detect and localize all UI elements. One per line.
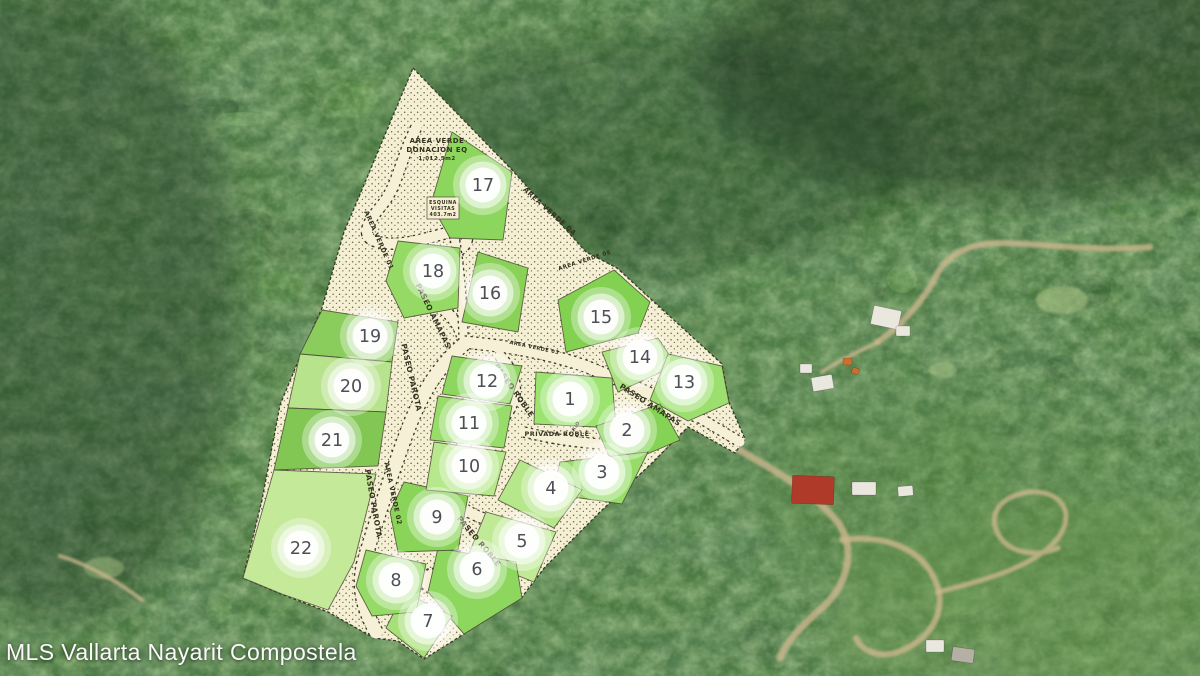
lot-marker: 21 bbox=[302, 410, 362, 470]
lot-number: 6 bbox=[471, 560, 482, 580]
lot-number: 10 bbox=[458, 457, 480, 477]
lot-number: 16 bbox=[479, 284, 501, 304]
lot-marker: 17 bbox=[453, 155, 513, 215]
lot-number: 13 bbox=[673, 373, 695, 393]
lot-number: 2 bbox=[621, 421, 632, 441]
lot-number: 8 bbox=[390, 571, 401, 591]
lot-number: 22 bbox=[290, 539, 312, 559]
lot-marker: 9 bbox=[407, 487, 467, 547]
lot-marker: 20 bbox=[321, 356, 381, 416]
white-roof bbox=[898, 485, 914, 496]
lot-number: 12 bbox=[476, 372, 498, 392]
lot-marker: 6 bbox=[447, 539, 507, 599]
plat-label: 403.7m2 bbox=[429, 212, 456, 218]
white-roof bbox=[896, 326, 910, 336]
plat-label: ESQUINA bbox=[429, 200, 457, 206]
lot-marker: 22 bbox=[271, 518, 331, 578]
watermark: MLS Vallarta Nayarit Compostela bbox=[6, 639, 357, 666]
lot-marker: 3 bbox=[572, 442, 632, 502]
lot-marker: 18 bbox=[403, 241, 463, 301]
lot-number: 3 bbox=[596, 463, 607, 483]
lot-number: 15 bbox=[590, 308, 612, 328]
plat-label: AREA VERDE bbox=[410, 137, 465, 145]
screenshot-stage: AREA VERDEDONACION EQ1,012.5m2ESQUINAVIS… bbox=[0, 0, 1200, 676]
gray-roof bbox=[951, 647, 975, 664]
lot-number: 7 bbox=[422, 612, 433, 632]
plat-label: PRIVADA ROBLE bbox=[524, 430, 589, 438]
plat-label: DONACION EQ bbox=[406, 146, 467, 154]
lot-number: 21 bbox=[321, 431, 343, 451]
plat-label: VISITAS bbox=[431, 206, 455, 212]
lot-number: 20 bbox=[340, 377, 362, 397]
lot-number: 4 bbox=[545, 479, 556, 499]
white-roof bbox=[926, 640, 944, 652]
lot-number: 14 bbox=[629, 348, 651, 368]
lot-marker: 8 bbox=[366, 550, 426, 610]
lot-number: 5 bbox=[516, 532, 527, 552]
lot-marker: 12 bbox=[457, 351, 517, 411]
lot-number: 17 bbox=[472, 176, 494, 196]
lot-marker: 1 bbox=[540, 369, 600, 429]
lot-marker: 4 bbox=[521, 458, 581, 518]
lot-number: 9 bbox=[431, 508, 442, 528]
white-roof bbox=[852, 482, 876, 495]
lot-number: 19 bbox=[359, 327, 381, 347]
lot-marker: 13 bbox=[654, 352, 714, 412]
lot-number: 1 bbox=[564, 390, 575, 410]
white-roof bbox=[800, 364, 812, 373]
aerial-photo-scene: AREA VERDEDONACION EQ1,012.5m2ESQUINAVIS… bbox=[0, 0, 1200, 676]
orange-object bbox=[843, 358, 852, 365]
plat-label: 1,012.5m2 bbox=[418, 156, 455, 162]
lot-number: 18 bbox=[422, 262, 444, 282]
lot-marker: 16 bbox=[460, 263, 520, 323]
lot-number: 11 bbox=[458, 414, 480, 434]
red-roof-house bbox=[792, 475, 835, 504]
